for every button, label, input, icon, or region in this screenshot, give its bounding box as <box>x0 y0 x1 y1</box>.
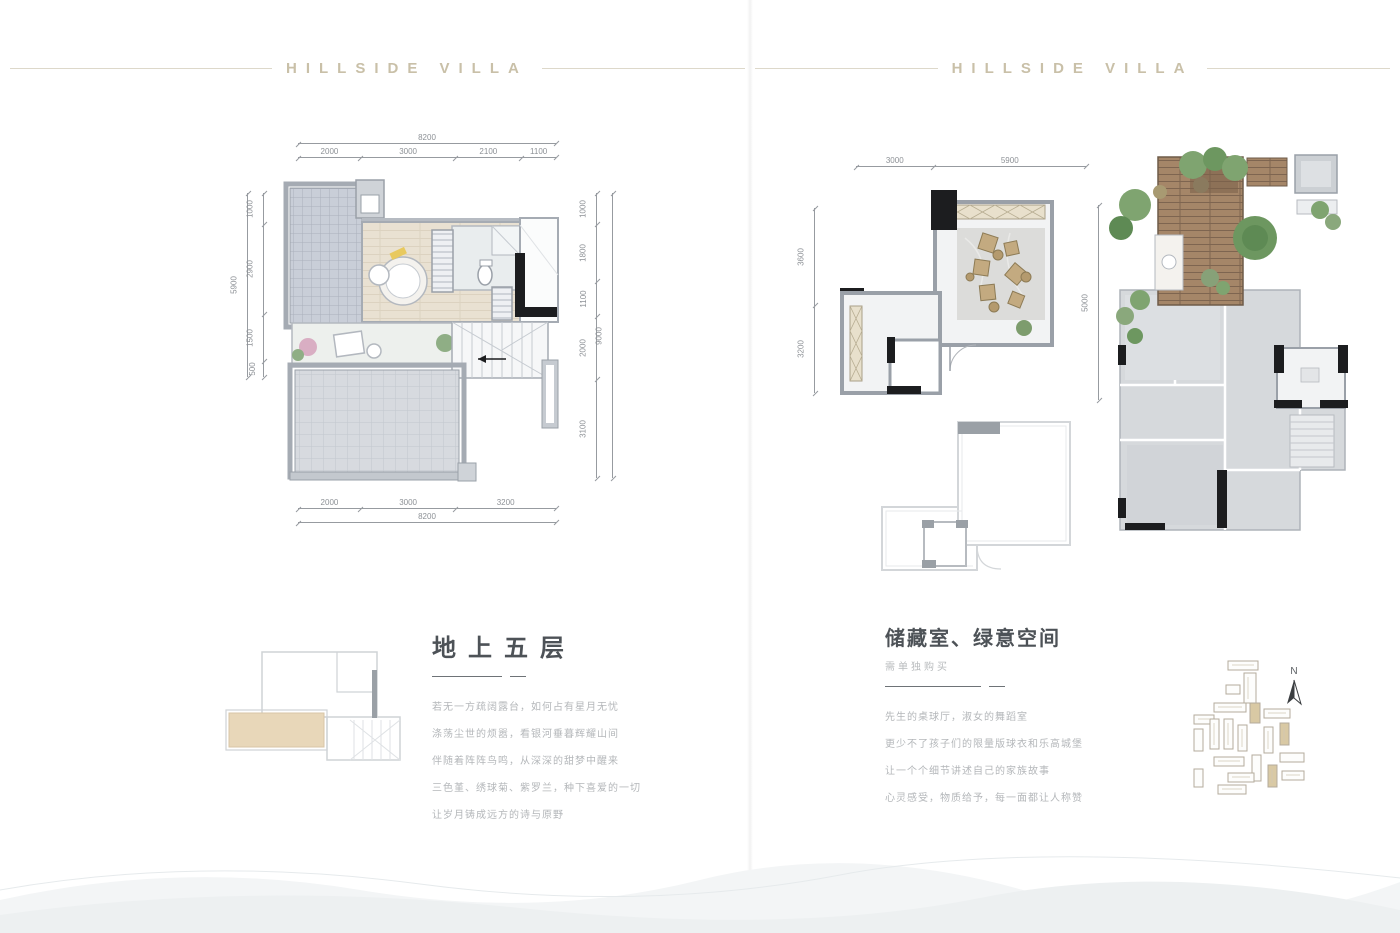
key-plan-highlight-terrace <box>226 710 327 750</box>
outline-shaft <box>922 520 968 568</box>
plant-icon <box>1016 320 1032 336</box>
text-line: 心灵感受，物质给予，每一面都让人称赞 <box>885 785 1145 812</box>
north-label: N <box>1281 666 1307 677</box>
text-line: 三色堇、绣球菊、紫罗兰，种下喜爱的一切 <box>432 775 682 802</box>
dimension-label: 1000 <box>246 200 255 218</box>
dimension-label: 3000 <box>399 147 417 156</box>
dimension-label: 2000 <box>321 498 339 507</box>
right-wall-column <box>542 360 558 428</box>
page-fold-divider <box>747 0 753 933</box>
text-line: 让一个个细节讲述自己的家族故事 <box>885 758 1145 785</box>
dimension-label: 5000 <box>1081 294 1090 312</box>
header-rule-right <box>542 68 745 69</box>
stairs <box>1290 415 1334 467</box>
key-plan-stairs <box>350 720 400 760</box>
text-line: 若无一方疏阔露台，如何占有星月无忧 <box>432 694 682 721</box>
dim-left-total: 5900 <box>247 193 248 377</box>
dim-bottom-total: 8200 <box>298 522 556 523</box>
balcony-garden-strip <box>292 323 462 367</box>
header-rule-left <box>755 68 938 69</box>
section-title: 储藏室、绿意空间 <box>885 622 1145 651</box>
north-indicator: N <box>1281 666 1307 708</box>
dimension-label: 3000 <box>886 156 904 165</box>
title-underline <box>885 686 1145 687</box>
dimension-label: 1100 <box>579 290 588 307</box>
elevator-shaft <box>887 337 940 394</box>
description-paragraph: 若无一方疏阔露台，如何占有星月无忧涤荡尘世的烦嚣，看银河垂暮辉耀山间伴随着阵阵鸟… <box>432 694 682 829</box>
right-text-block: 储藏室、绿意空间 需单独购买 先生的桌球厅，淑女的舞蹈室更少不了孩子们的限量版球… <box>885 622 1145 812</box>
outline-door-swing <box>977 545 1001 569</box>
terrace-bottom <box>290 365 476 481</box>
dim-left-segments: 100029001500500 <box>263 193 264 377</box>
dimension-label: 1100 <box>530 147 547 156</box>
dimension-label: 2000 <box>321 147 339 156</box>
dimension-label: 5900 <box>230 276 239 294</box>
dimension-label: 1800 <box>579 244 588 262</box>
section-title: 地上五层 <box>432 628 682 663</box>
dimension-label: 8200 <box>418 133 436 142</box>
dim-right-total: 5000 <box>1098 205 1099 400</box>
title-underline <box>432 676 682 677</box>
dimension-label: 3100 <box>579 420 588 438</box>
dimension-label: 3600 <box>797 248 806 266</box>
storage-room-plan <box>830 178 1110 418</box>
closet-room <box>520 218 558 322</box>
dimension-label: 500 <box>248 362 257 375</box>
left-page-header: HILLSIDE VILLA <box>10 58 745 78</box>
section-subtitle: 需单独购买 <box>885 658 1145 673</box>
roof-garden-plan <box>1105 140 1355 540</box>
dimension-label: 2100 <box>479 147 497 156</box>
dimension-label: 5900 <box>1001 156 1019 165</box>
right-page-header: HILLSIDE VILLA <box>755 58 1390 78</box>
key-plan-thumbnail <box>222 632 412 797</box>
fifth-floor-plan <box>240 135 580 535</box>
dimension-label: 8200 <box>418 512 436 521</box>
elevator-shaft <box>1274 345 1348 408</box>
description-paragraph: 先生的桌球厅，淑女的舞蹈室更少不了孩子们的限量版球衣和乐高城堡让一个个细节讲述自… <box>885 704 1145 812</box>
door-swing <box>950 345 976 371</box>
plant-icon <box>292 349 304 361</box>
dim-left-segments: 36003200 <box>814 208 815 393</box>
dimension-label: 2000 <box>579 339 588 357</box>
dimension-label: 3200 <box>497 498 515 507</box>
text-line: 伴随着阵阵鸟鸣，从深深的甜梦中醒来 <box>432 748 682 775</box>
lower-unit-grayed <box>1118 290 1345 530</box>
dim-bottom-segments: 200030003200 <box>298 508 556 509</box>
dimension-label: 1000 <box>579 200 588 218</box>
dim-top-segments: 30005900 <box>856 166 1086 167</box>
text-line: 先生的桌球厅，淑女的舞蹈室 <box>885 704 1145 731</box>
mountain-watermark <box>0 820 1400 933</box>
storage-outline-plan <box>872 410 1082 580</box>
text-line: 涤荡尘世的烦嚣，看银河垂暮辉耀山间 <box>432 721 682 748</box>
dimension-label: 9000 <box>595 327 604 345</box>
brand-title: HILLSIDE VILLA <box>272 60 542 77</box>
dimension-label: 3200 <box>797 341 806 359</box>
brand-title: HILLSIDE VILLA <box>938 60 1208 77</box>
dim-top-segments: 2000300021001100 <box>298 157 556 158</box>
dimension-label: 3000 <box>399 498 417 507</box>
header-rule-left <box>10 68 272 69</box>
dimension-label: 1500 <box>246 329 255 347</box>
text-line: 更少不了孩子们的限量版球衣和乐高城堡 <box>885 731 1145 758</box>
dim-top-total: 8200 <box>298 143 556 144</box>
dimension-label: 2900 <box>246 260 255 278</box>
outline-walls <box>882 422 1070 570</box>
header-rule-right <box>1207 68 1390 69</box>
left-text-block: 地上五层 若无一方疏阔露台，如何占有星月无忧涤荡尘世的烦嚣，看银河垂暮辉耀山间伴… <box>432 628 682 829</box>
dim-right-total: 9000 <box>612 193 613 478</box>
north-arrow-icon <box>1281 678 1307 708</box>
